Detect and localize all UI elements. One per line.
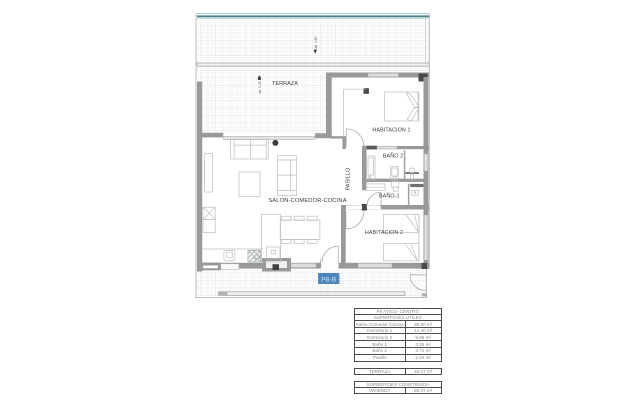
- svg-text:BAÑO-1: BAÑO-1: [379, 193, 400, 200]
- svg-text:alt. 1.05: alt. 1.05: [258, 81, 262, 93]
- svg-text:HABITACION 1: HABITACION 1: [372, 128, 410, 134]
- svg-text:PASILLO: PASILLO: [346, 168, 352, 191]
- svg-text:BAÑO 2: BAÑO 2: [383, 152, 403, 159]
- svg-text:TERRAZA: TERRAZA: [272, 81, 298, 87]
- svg-text:P8-B: P8-B: [321, 276, 337, 283]
- svg-text:alt. 1.67: alt. 1.67: [314, 36, 318, 48]
- svg-text:HABITACION 2: HABITACION 2: [365, 230, 403, 236]
- svg-text:SALON-COMEDOR-COCINA: SALON-COMEDOR-COCINA: [268, 198, 346, 204]
